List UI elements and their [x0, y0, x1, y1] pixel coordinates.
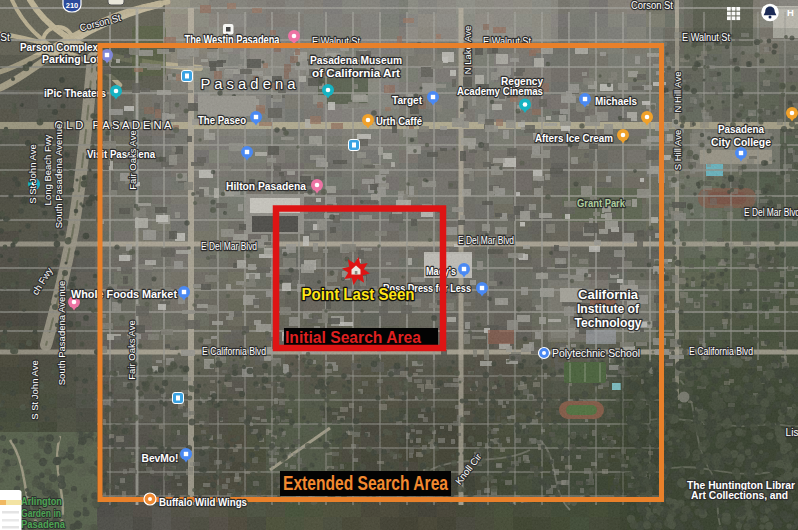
svg-text:Michaels: Michaels [595, 95, 637, 107]
svg-text:Arlington: Arlington [21, 495, 62, 507]
svg-text:Buffalo Wild Wings: Buffalo Wild Wings [159, 496, 247, 508]
svg-text:St: St [0, 32, 10, 43]
svg-text:Institute of: Institute of [577, 302, 640, 316]
svg-text:City College: City College [711, 136, 771, 148]
svg-text:E Walnut St: E Walnut St [682, 32, 730, 43]
svg-text:N Lake Ave: N Lake Ave [462, 26, 473, 74]
svg-text:P a s a d e n a: P a s a d e n a [201, 76, 296, 92]
svg-text:California: California [578, 288, 639, 302]
svg-text:Pasadena: Pasadena [21, 518, 65, 530]
svg-text:Polytechnic School: Polytechnic School [552, 347, 640, 359]
svg-text:E Del Mar Blvd: E Del Mar Blvd [744, 207, 798, 218]
svg-text:of California Art: of California Art [312, 67, 400, 79]
svg-text:E California Blvd: E California Blvd [689, 346, 753, 357]
svg-text:O L D P A S A D E N A: O L D P A S A D E N A [55, 119, 172, 131]
svg-text:N Hill Ave: N Hill Ave [672, 71, 683, 112]
svg-text:Lis: Lis [786, 427, 798, 438]
svg-text:Visit Pasadena: Visit Pasadena [87, 148, 156, 160]
svg-text:Initial Search Area: Initial Search Area [285, 328, 422, 346]
svg-text:Urth Caffé: Urth Caffé [376, 115, 422, 127]
svg-text:South Pasadena Avenue: South Pasadena Avenue [53, 124, 64, 228]
svg-text:Garden in: Garden in [21, 507, 61, 519]
svg-text:South Pasadena Avenue: South Pasadena Avenue [56, 281, 67, 385]
svg-text:S Hill Ave: S Hill Ave [672, 130, 683, 170]
svg-text:E Del Mar Blvd: E Del Mar Blvd [458, 235, 514, 246]
svg-text:Corson St: Corson St [631, 0, 673, 11]
svg-text:Hilton Pasadena: Hilton Pasadena [226, 180, 307, 192]
svg-text:Parson Complex: Parson Complex [20, 41, 99, 53]
svg-text:E Del Mar Blvd: E Del Mar Blvd [201, 241, 257, 252]
svg-text:BevMo!: BevMo! [142, 452, 179, 464]
svg-text:Long Beach Fwy: Long Beach Fwy [42, 134, 53, 205]
svg-text:S St John Ave: S St John Ave [29, 360, 40, 420]
svg-text:Point Last Seen: Point Last Seen [302, 286, 415, 303]
svg-text:Fair Oaks Ave: Fair Oaks Ave [126, 320, 137, 380]
svg-text:Academy Cinemas: Academy Cinemas [457, 85, 543, 97]
svg-text:H: H [787, 7, 794, 18]
svg-text:Fair Oaks Ave: Fair Oaks Ave [127, 130, 138, 190]
svg-text:Technology: Technology [575, 316, 642, 330]
svg-text:Grant Park: Grant Park [577, 197, 626, 209]
svg-text:Pasadena Museum: Pasadena Museum [310, 54, 402, 66]
svg-text:Whole Foods Market: Whole Foods Market [71, 288, 177, 300]
svg-text:Afters Ice Cream: Afters Ice Cream [535, 132, 613, 144]
svg-text:iPic Theaters: iPic Theaters [44, 87, 106, 99]
svg-text:Target: Target [392, 94, 422, 106]
svg-text:Extended Search Area: Extended Search Area [283, 471, 448, 494]
svg-text:210: 210 [66, 1, 79, 10]
svg-text:Art Collections, and: Art Collections, and [691, 489, 791, 501]
svg-text:E California Blvd: E California Blvd [202, 346, 266, 357]
svg-text:Pasadena: Pasadena [718, 123, 765, 135]
svg-text:The Paseo: The Paseo [198, 114, 246, 126]
svg-text:S St John Ave: S St John Ave [27, 144, 38, 204]
svg-text:Parking Lot: Parking Lot [42, 53, 100, 65]
